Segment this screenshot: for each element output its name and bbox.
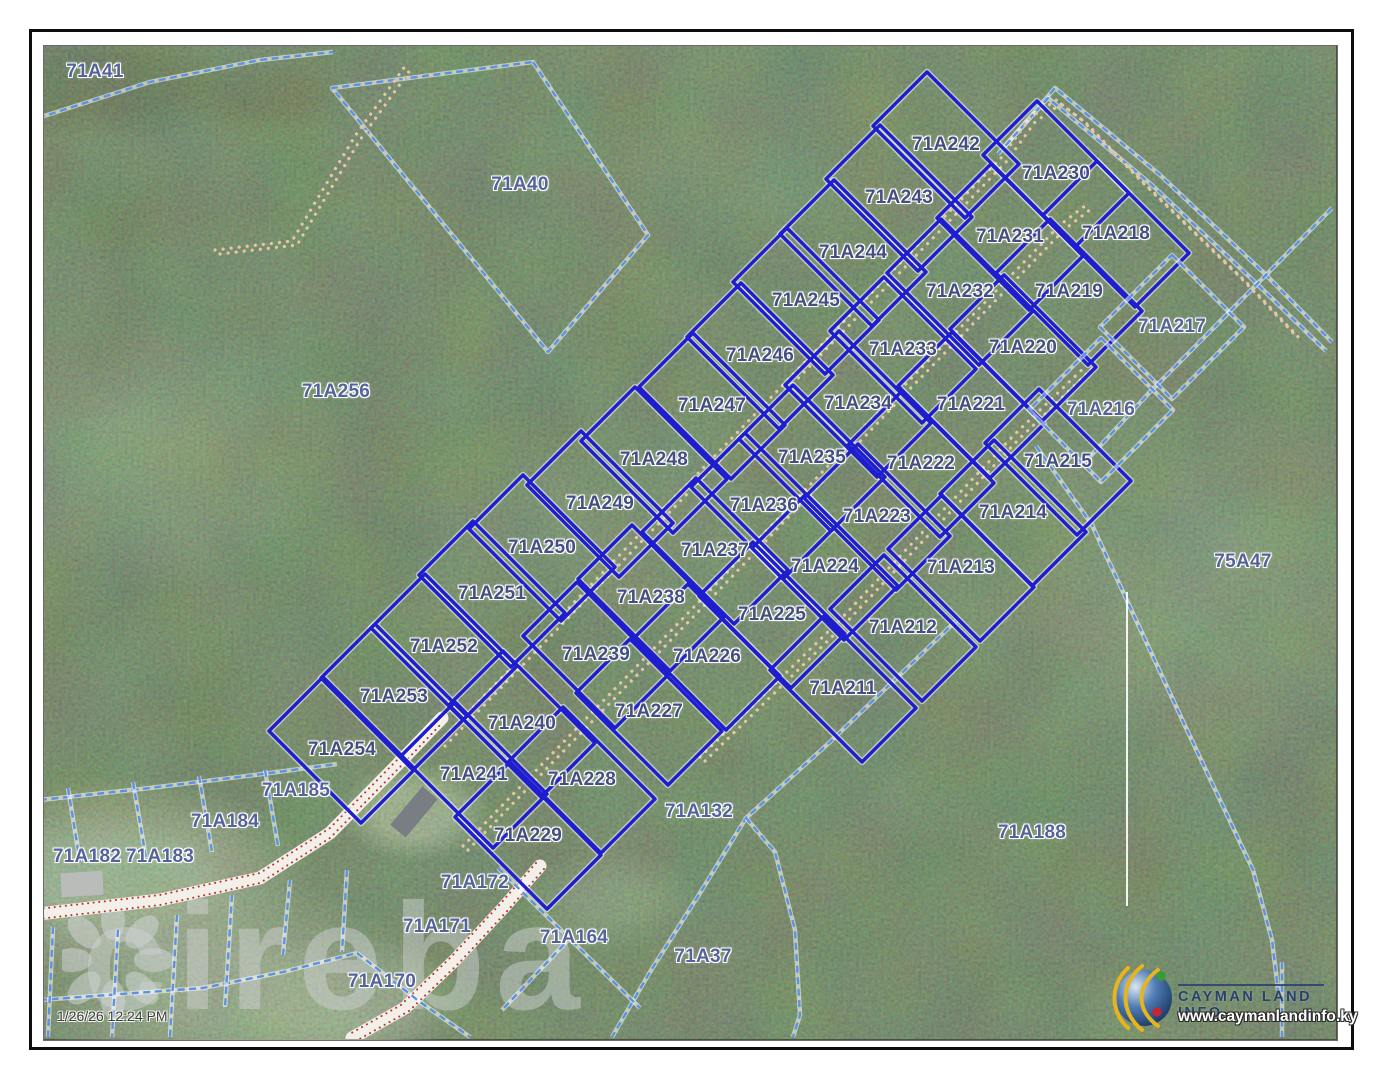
parcel-label-71A224: 71A224 bbox=[791, 556, 859, 578]
parcel-label-71A37: 71A37 bbox=[674, 946, 732, 968]
parcel-label-71A218: 71A218 bbox=[1082, 223, 1150, 245]
parcel-label-71A228: 71A228 bbox=[548, 769, 616, 791]
parcel-label-71A216: 71A216 bbox=[1067, 399, 1135, 421]
parcel-label-71A235: 71A235 bbox=[778, 447, 846, 469]
parcel-label-71A245: 71A245 bbox=[772, 290, 840, 312]
parcel-label-71A241: 71A241 bbox=[440, 764, 508, 786]
parcel-label-71A232: 71A232 bbox=[926, 281, 994, 303]
parcel-label-71A226: 71A226 bbox=[673, 646, 741, 668]
map-document-page: cireba 71A24271A24371A24471A24571A24671A… bbox=[0, 0, 1383, 1084]
parcel-label-71A211: 71A211 bbox=[809, 678, 876, 700]
parcel-label-71A225: 71A225 bbox=[738, 604, 806, 626]
parcel-label-71A254: 71A254 bbox=[308, 739, 376, 761]
parcel-label-71A184: 71A184 bbox=[191, 811, 259, 833]
parcel-label-71A220: 71A220 bbox=[989, 337, 1057, 359]
parcel-label-71A229: 71A229 bbox=[494, 825, 562, 847]
parcel-label-71A250: 71A250 bbox=[508, 537, 576, 559]
parcel-label-71A132: 71A132 bbox=[665, 801, 733, 823]
parcel-label-71A182: 71A182 bbox=[53, 846, 121, 868]
parcel-label-71A248: 71A248 bbox=[620, 449, 688, 471]
parcel-label-71A212: 71A212 bbox=[869, 617, 937, 639]
parcel-label-71A247: 71A247 bbox=[678, 395, 746, 417]
parcel-label-71A230: 71A230 bbox=[1022, 163, 1090, 185]
logo-divider bbox=[1178, 984, 1324, 986]
print-timestamp: 1/26/26 12:24 PM bbox=[57, 1008, 168, 1024]
parcel-label-71A41: 71A41 bbox=[66, 61, 124, 83]
parcel-label-71A249: 71A249 bbox=[566, 493, 634, 515]
globe-icon bbox=[1108, 962, 1174, 1036]
parcel-label-71A256: 71A256 bbox=[302, 381, 370, 403]
parcel-label-71A244: 71A244 bbox=[819, 242, 887, 264]
parcel-label-71A252: 71A252 bbox=[410, 636, 478, 658]
parcel-label-71A188: 71A188 bbox=[998, 822, 1066, 844]
parcel-label-71A183: 71A183 bbox=[126, 846, 194, 868]
parcel-label-71A236: 71A236 bbox=[730, 495, 798, 517]
parcel-label-71A164: 71A164 bbox=[540, 927, 608, 949]
parcel-label-71A214: 71A214 bbox=[979, 502, 1047, 524]
parcel-label-71A237: 71A237 bbox=[681, 540, 749, 562]
parcel-label-71A171: 71A171 bbox=[403, 916, 471, 938]
parcel-label-71A251: 71A251 bbox=[458, 583, 526, 605]
parcel-label-71A170: 71A170 bbox=[348, 971, 416, 993]
parcel-label-71A223: 71A223 bbox=[843, 506, 911, 528]
parcel-label-71A185: 71A185 bbox=[262, 780, 330, 802]
parcel-label-71A253: 71A253 bbox=[360, 686, 428, 708]
parcel-label-71A213: 71A213 bbox=[927, 557, 995, 579]
parcel-label-71A238: 71A238 bbox=[617, 587, 685, 609]
parcel-label-75A47: 75A47 bbox=[1214, 551, 1272, 573]
parcel-label-71A215: 71A215 bbox=[1024, 451, 1092, 473]
cayman-land-info-logo: CAYMAN LAND INFO www.caymanlandinfo.ky bbox=[1108, 962, 1336, 1036]
parcel-label-71A233: 71A233 bbox=[869, 339, 937, 361]
parcel-label-71A219: 71A219 bbox=[1035, 281, 1103, 303]
parcel-label-71A243: 71A243 bbox=[865, 187, 933, 209]
parcel-label-71A246: 71A246 bbox=[726, 345, 794, 367]
parcel-label-71A231: 71A231 bbox=[976, 226, 1044, 248]
parcel-label-71A221: 71A221 bbox=[937, 394, 1005, 416]
parcel-label-71A217: 71A217 bbox=[1138, 316, 1206, 338]
parcel-label-71A227: 71A227 bbox=[615, 701, 683, 723]
parcel-label-71A222: 71A222 bbox=[887, 453, 955, 475]
parcel-label-71A172: 71A172 bbox=[441, 872, 509, 894]
parcel-label-71A239: 71A239 bbox=[562, 644, 630, 666]
parcel-label-71A234: 71A234 bbox=[824, 393, 892, 415]
parcel-label-71A242: 71A242 bbox=[912, 134, 980, 156]
parcel-label-71A240: 71A240 bbox=[488, 713, 556, 735]
logo-website: www.caymanlandinfo.ky bbox=[1178, 1008, 1357, 1026]
parcel-label-71A40: 71A40 bbox=[491, 174, 549, 196]
